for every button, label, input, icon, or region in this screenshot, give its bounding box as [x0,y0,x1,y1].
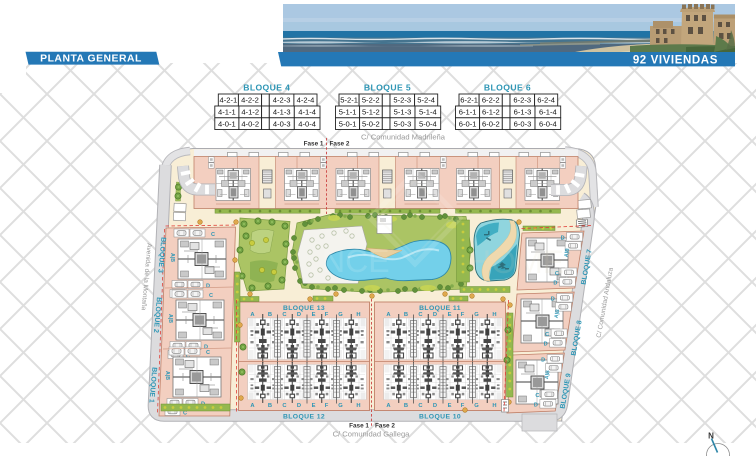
svg-text:C: C [211,232,215,238]
svg-text:C: C [206,350,210,356]
svg-text:C/ Comunidad Andaluza: C/ Comunidad Andaluza [596,267,615,339]
svg-text:D: D [297,403,301,409]
svg-text:6-2-4: 6-2-4 [537,96,555,105]
svg-text:BLOQUE 10: BLOQUE 10 [419,413,461,420]
svg-text:C/ Comunidad Gallega: C/ Comunidad Gallega [333,430,411,439]
svg-text:5-0-4: 5-0-4 [419,119,437,128]
svg-text:G: G [474,312,479,318]
svg-text:Fase 2: Fase 2 [375,423,395,430]
svg-text:4-1-2: 4-1-2 [241,108,259,117]
svg-text:Fase 2: Fase 2 [330,141,350,148]
svg-text:B: B [404,403,408,409]
svg-text:H: H [492,312,496,318]
svg-text:D: D [206,284,210,290]
svg-text:E: E [448,312,452,318]
svg-text:5-1-4: 5-1-4 [419,108,437,117]
svg-text:D: D [553,281,557,287]
svg-text:G: G [474,403,479,409]
svg-text:4-0-4: 4-0-4 [298,119,316,128]
svg-text:4-1-3: 4-1-3 [273,108,291,117]
svg-text:4-2-3: 4-2-3 [273,96,291,105]
svg-text:A|B: A|B [167,314,173,323]
svg-text:D: D [544,342,548,348]
svg-text:C: C [545,332,549,338]
svg-text:4-2-1: 4-2-1 [220,96,238,105]
svg-text:E: E [448,403,452,409]
svg-text:6-0-1: 6-0-1 [459,119,477,128]
svg-text:G: G [338,312,343,318]
svg-text:5-1-1: 5-1-1 [339,108,357,117]
svg-text:4-2-4: 4-2-4 [297,96,315,105]
svg-text:D: D [561,236,565,242]
svg-text:BLOQUE 13: BLOQUE 13 [283,305,325,312]
svg-text:D: D [297,312,301,318]
svg-text:5-2-4: 5-2-4 [417,96,435,105]
svg-text:C: C [209,293,213,299]
svg-text:C: C [183,411,187,417]
svg-text:BLOQUE 12: BLOQUE 12 [283,413,325,420]
svg-text:B: B [404,312,408,318]
svg-text:6-1-3: 6-1-3 [514,108,532,117]
svg-text:C: C [555,271,559,277]
svg-text:6-0-2: 6-0-2 [482,119,500,128]
svg-text:E: E [312,312,316,318]
svg-text:E: E [312,403,316,409]
svg-text:G: G [338,403,343,409]
svg-text:BLOQUE 11: BLOQUE 11 [419,305,461,312]
svg-text:4-1-4: 4-1-4 [298,108,316,117]
svg-text:H: H [356,312,360,318]
svg-text:D: D [433,312,437,318]
svg-text:B: B [268,312,272,318]
svg-text:4-0-3: 4-0-3 [273,119,291,128]
svg-text:F: F [461,312,465,318]
svg-text:6-2-3: 6-2-3 [513,96,531,105]
svg-text:Fase 1: Fase 1 [304,141,324,148]
svg-text:D: D [551,297,555,303]
svg-text:4-1-1: 4-1-1 [218,108,236,117]
svg-text:5-0-3: 5-0-3 [394,119,412,128]
svg-text:4-0-2: 4-0-2 [241,119,259,128]
svg-text:5-2-1: 5-2-1 [340,96,358,105]
svg-text:F: F [325,312,329,318]
svg-text:D: D [433,403,437,409]
svg-text:A|B: A|B [164,371,170,380]
svg-text:Fase 1: Fase 1 [349,423,369,430]
svg-text:H: H [356,403,360,409]
svg-text:4-0-1: 4-0-1 [218,119,236,128]
svg-text:5-1-3: 5-1-3 [394,108,412,117]
svg-text:A|B: A|B [169,253,175,262]
svg-text:4-2-2: 4-2-2 [241,96,259,105]
svg-text:6-2-2: 6-2-2 [482,96,500,105]
svg-text:Avenida de la Montaña: Avenida de la Montaña [140,243,153,311]
svg-text:H: H [492,403,496,409]
svg-text:N: N [708,432,714,441]
svg-text:5-1-2: 5-1-2 [362,108,380,117]
svg-text:6-1-4: 6-1-4 [539,108,557,117]
svg-text:BLOQUE 5: BLOQUE 5 [364,83,411,93]
svg-text:BLOQUE 6: BLOQUE 6 [484,83,531,93]
svg-text:6-0-4: 6-0-4 [539,119,557,128]
svg-text:B: B [268,403,272,409]
svg-text:D: D [534,403,538,409]
svg-text:5-2-2: 5-2-2 [362,96,380,105]
svg-text:5-0-1: 5-0-1 [339,119,357,128]
svg-text:6-2-1: 6-2-1 [460,96,478,105]
svg-text:6-1-1: 6-1-1 [459,108,477,117]
svg-text:C/ Comunidad Madrileña: C/ Comunidad Madrileña [361,133,446,142]
svg-text:D: D [541,358,545,364]
svg-text:F: F [325,403,329,409]
svg-text:5-0-2: 5-0-2 [362,119,380,128]
svg-text:C: C [535,393,539,399]
svg-text:6-0-3: 6-0-3 [514,119,532,128]
svg-text:5-2-3: 5-2-3 [393,96,411,105]
svg-text:BLOQUE 4: BLOQUE 4 [243,83,290,93]
svg-text:6-1-2: 6-1-2 [482,108,500,117]
